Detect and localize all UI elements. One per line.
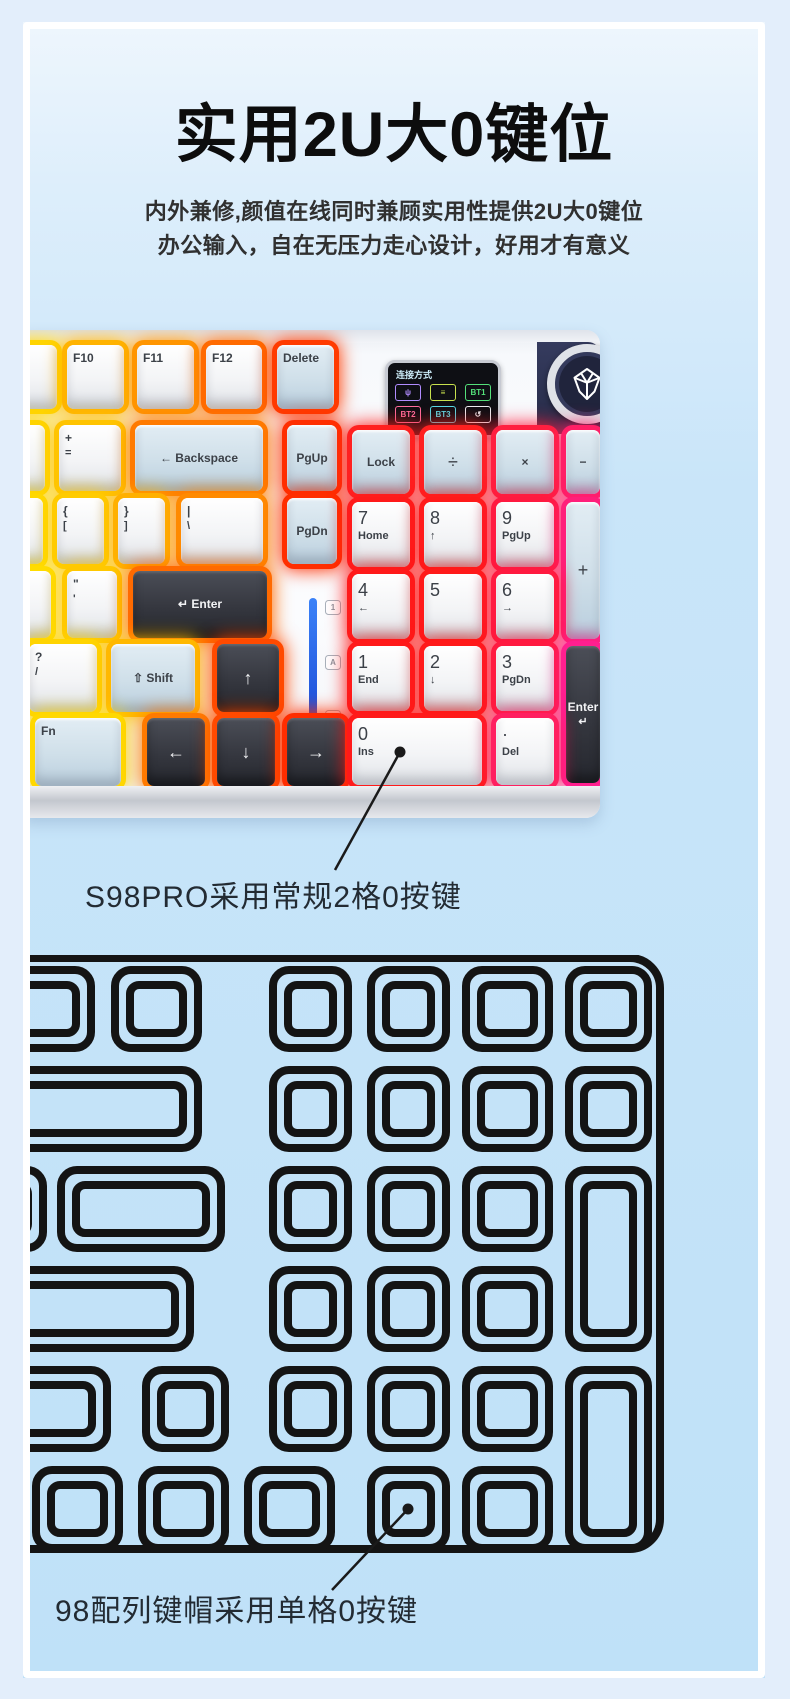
lineart-key-inner	[386, 1085, 431, 1133]
key-label: F11	[143, 352, 188, 365]
key-label: ↓	[242, 743, 251, 762]
lineart-key-inner	[23, 1285, 175, 1333]
key-sublabel: ↑	[430, 531, 476, 543]
subtitle-line2: 办公输入，自在无压力走心设计，好用才有意义	[23, 228, 765, 260]
key-label: F9	[23, 352, 51, 365]
keyboard-key: ×	[496, 430, 554, 494]
key-label: 1	[358, 653, 404, 672]
keyboard-key: 0Ins	[352, 718, 482, 785]
lineart-key-inner	[584, 1185, 633, 1333]
lineart-callout-text: 98配列键帽采用单格0按键	[55, 1586, 418, 1630]
photo-keys: F9F10F11F12Delete-+=← BackspacePgUp{[}]|…	[23, 330, 600, 818]
keyboard-key: Lock	[352, 430, 410, 494]
key-label: }	[124, 505, 159, 518]
keyboard-key: ?/	[29, 644, 97, 712]
keyboard-key: 3PgDn	[496, 646, 554, 711]
keyboard-key: }]	[118, 498, 165, 564]
lineart-key-inner	[76, 1185, 206, 1233]
keyboard-key: F12	[206, 345, 262, 409]
key-label: −	[579, 456, 586, 469]
keyboard-key: -	[23, 425, 45, 491]
lineart-key-inner	[51, 1485, 104, 1533]
keyboard-key: →	[287, 718, 345, 786]
keyboard-key: 5	[424, 574, 482, 639]
key-label: "	[73, 578, 111, 591]
keyboard-key: "'	[67, 571, 117, 638]
lineart-key-inner	[23, 985, 76, 1033]
key-label: PgDn	[296, 525, 327, 538]
lineart-key-inner	[288, 1085, 333, 1133]
key-label: 9	[502, 509, 548, 528]
lineart-key-inner	[386, 1185, 431, 1233]
key-label: 6	[502, 581, 548, 600]
lineart-key-inner	[386, 1385, 431, 1433]
lineart-key-inner	[23, 1385, 92, 1433]
page: 实用2U大0键位 内外兼修,颜值在线同时兼顾实用性提供2U大0键位 办公输入，自…	[0, 0, 790, 1699]
key-sublabel: ←	[358, 603, 404, 615]
key-sublabel: '	[73, 594, 111, 606]
keyboard-key: ·Del	[496, 718, 554, 785]
lineart-key-inner	[23, 1185, 28, 1233]
lineart-key-inner	[386, 1485, 431, 1533]
lineart-key-inner	[288, 1185, 333, 1233]
key-sublabel: ]	[124, 521, 159, 533]
keyboard-key: F10	[67, 345, 124, 409]
keyboard-lineart-diagram	[23, 955, 668, 1559]
subtitle-line1: 内外兼修,颜值在线同时兼顾实用性提供2U大0键位	[23, 194, 765, 226]
lineart-key-inner	[481, 1385, 534, 1433]
key-sublabel: End	[358, 675, 404, 687]
keyboard-key: F9	[23, 345, 57, 409]
keyboard-key: 8↑	[424, 502, 482, 567]
photo-callout-text: S98PRO采用常规2格0按键	[85, 872, 462, 916]
key-sublabel: \	[187, 521, 257, 533]
lineart-key-inner	[386, 985, 431, 1033]
keyboard-key: ÷	[424, 430, 482, 494]
key-sublabel: =	[65, 448, 115, 460]
keyboard-key: F11	[137, 345, 194, 409]
key-label: ?	[35, 651, 91, 664]
keyboard-key	[23, 498, 43, 564]
keyboard-key	[23, 571, 51, 638]
key-sublabel: Home	[358, 531, 404, 543]
key-sublabel: PgUp	[502, 531, 548, 543]
lineart-key-inner	[481, 1185, 534, 1233]
key-label: +	[578, 561, 589, 580]
key-label: ⇧ Shift	[133, 672, 173, 685]
key-sublabel: ↓	[430, 675, 476, 687]
lineart-key-inner	[157, 1485, 210, 1533]
keyboard-key: 7Home	[352, 502, 410, 567]
key-label: ↵ Enter	[178, 598, 222, 611]
lineart-key-inner	[161, 1385, 210, 1433]
lineart-key-inner	[130, 985, 183, 1033]
key-label: ← Backspace	[160, 452, 238, 465]
keyboard-key: 9PgUp	[496, 502, 554, 567]
keyboard-key: ↑	[217, 644, 279, 712]
keyboard-key: Fn	[35, 718, 121, 786]
key-label: F10	[73, 352, 118, 365]
key-label: 8	[430, 509, 476, 528]
key-sublabel: /	[35, 667, 91, 679]
keyboard-front-edge	[23, 786, 600, 818]
key-label: 2	[430, 653, 476, 672]
key-label: 5	[430, 581, 476, 600]
lineart-key-inner	[288, 985, 333, 1033]
keyboard-key: ⇧ Shift	[111, 644, 195, 712]
page-title: 实用2U大0键位	[23, 84, 765, 175]
keyboard-key: PgDn	[287, 498, 337, 564]
key-sublabel: [	[63, 521, 98, 533]
key-label: Delete	[283, 352, 328, 365]
lineart-key-inner	[263, 1485, 316, 1533]
keyboard-key: +	[566, 502, 600, 639]
key-label: PgUp	[296, 452, 327, 465]
keyboard-key: ↵ Enter	[133, 571, 267, 638]
keyboard-key: ←	[147, 718, 205, 786]
keyboard-key: {[	[57, 498, 104, 564]
key-label: ↑	[244, 669, 253, 688]
keyboard-key: 2↓	[424, 646, 482, 711]
keyboard-key: Delete	[277, 345, 334, 409]
content-panel: 实用2U大0键位 内外兼修,颜值在线同时兼顾实用性提供2U大0键位 办公输入，自…	[23, 22, 765, 1678]
keyboard-key: Enter↵	[566, 646, 600, 783]
key-label: -	[23, 432, 39, 445]
key-label: F12	[212, 352, 256, 365]
key-label: ·	[502, 725, 548, 744]
key-sublabel: PgDn	[502, 675, 548, 687]
key-label: ×	[521, 456, 528, 469]
lineart-key-inner	[481, 1085, 534, 1133]
key-sublabel: ↵	[578, 717, 587, 729]
lineart-key-inner	[584, 1085, 633, 1133]
lineart-key-inner	[584, 985, 633, 1033]
keyboard-key: 4←	[352, 574, 410, 639]
key-label: Lock	[367, 456, 395, 469]
keyboard-key: 6→	[496, 574, 554, 639]
key-sublabel: Del	[502, 747, 548, 759]
lineart-key-inner	[386, 1285, 431, 1333]
key-label: Fn	[41, 725, 115, 738]
keyboard-key: 1End	[352, 646, 410, 711]
lineart-key-inner	[23, 1085, 183, 1133]
key-label: |	[187, 505, 257, 518]
key-label: +	[65, 432, 115, 445]
key-label: ←	[167, 743, 185, 762]
key-sublabel: Ins	[358, 747, 476, 759]
keyboard-key: −	[566, 430, 600, 494]
lineart-key-inner	[584, 1385, 633, 1533]
keyboard-key: |\	[181, 498, 263, 564]
keyboard-key: ↓	[217, 718, 275, 786]
lineart-key-inner	[481, 985, 534, 1033]
keyboard-key: ← Backspace	[135, 425, 263, 491]
key-label: {	[63, 505, 98, 518]
keyboard-photo: 连接方式 ψ≡BT1BT2BT3↺ 1A⇩ F9F10F11F12Delete-…	[23, 330, 600, 818]
lineart-key-inner	[481, 1285, 534, 1333]
key-label: 4	[358, 581, 404, 600]
lineart-key-inner	[288, 1285, 333, 1333]
key-label: 3	[502, 653, 548, 672]
key-label: ÷	[448, 453, 458, 472]
lineart-key-inner	[481, 1485, 534, 1533]
key-sublabel: →	[502, 603, 548, 615]
key-label: 7	[358, 509, 404, 528]
key-label: →	[307, 743, 325, 762]
key-label: 0	[358, 725, 476, 744]
keyboard-key: PgUp	[287, 425, 337, 491]
lineart-key-inner	[288, 1385, 333, 1433]
keyboard-key: +=	[59, 425, 121, 491]
key-label: Enter	[568, 701, 599, 714]
